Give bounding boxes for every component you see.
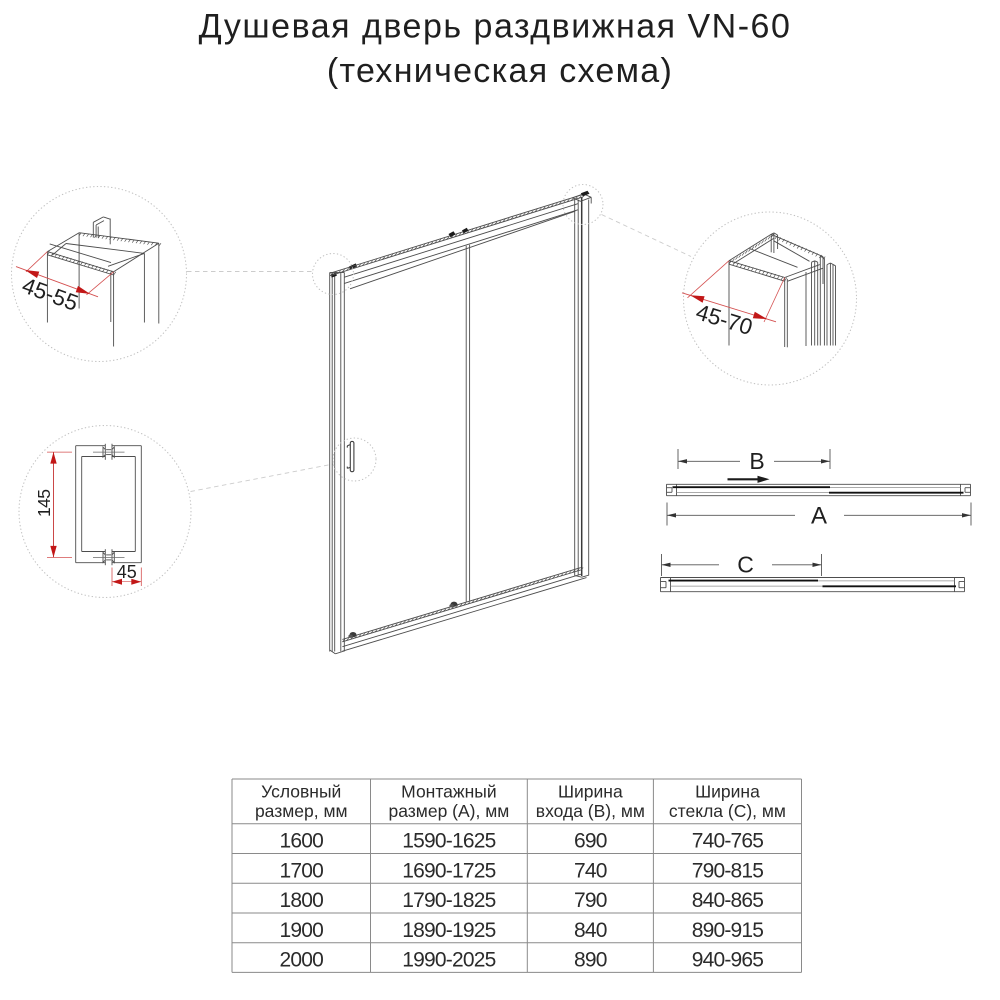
svg-text:840: 840 [574, 919, 607, 942]
svg-text:(техническая схема): (техническая схема) [327, 52, 673, 90]
svg-text:740-765: 740-765 [692, 830, 764, 853]
svg-text:740: 740 [574, 859, 607, 882]
svg-text:890-915: 890-915 [692, 919, 764, 942]
svg-text:2000: 2000 [279, 949, 323, 972]
svg-text:1700: 1700 [279, 859, 323, 882]
svg-text:840-865: 840-865 [692, 889, 764, 912]
svg-text:1690-1725: 1690-1725 [402, 859, 495, 882]
svg-text:1790-1825: 1790-1825 [402, 889, 495, 912]
svg-text:790: 790 [574, 889, 607, 912]
svg-text:C: C [737, 552, 754, 578]
svg-text:1890-1925: 1890-1925 [402, 919, 495, 942]
svg-text:145: 145 [34, 490, 54, 517]
svg-text:размер, мм: размер, мм [255, 801, 348, 821]
svg-text:45: 45 [117, 562, 137, 582]
svg-text:890: 890 [574, 949, 607, 972]
svg-text:Монтажный: Монтажный [401, 782, 496, 802]
svg-text:790-815: 790-815 [692, 859, 764, 882]
svg-text:1590-1625: 1590-1625 [402, 830, 495, 853]
svg-text:690: 690 [574, 830, 607, 853]
svg-text:размер (А), мм: размер (А), мм [389, 801, 510, 821]
svg-text:Ширина: Ширина [695, 782, 760, 802]
svg-text:940-965: 940-965 [692, 949, 764, 972]
svg-text:Душевая дверь раздвижная VN-60: Душевая дверь раздвижная VN-60 [199, 8, 792, 46]
svg-text:A: A [811, 503, 827, 530]
svg-text:1600: 1600 [279, 830, 323, 853]
svg-text:Условный: Условный [261, 782, 341, 802]
svg-text:1800: 1800 [279, 889, 323, 912]
svg-text:стекла (С), мм: стекла (С), мм [669, 801, 786, 821]
svg-text:Ширина: Ширина [558, 782, 623, 802]
svg-text:B: B [749, 448, 764, 474]
svg-text:1900: 1900 [279, 919, 323, 942]
svg-text:1990-2025: 1990-2025 [402, 949, 495, 972]
svg-text:входа (В), мм: входа (В), мм [536, 801, 645, 821]
